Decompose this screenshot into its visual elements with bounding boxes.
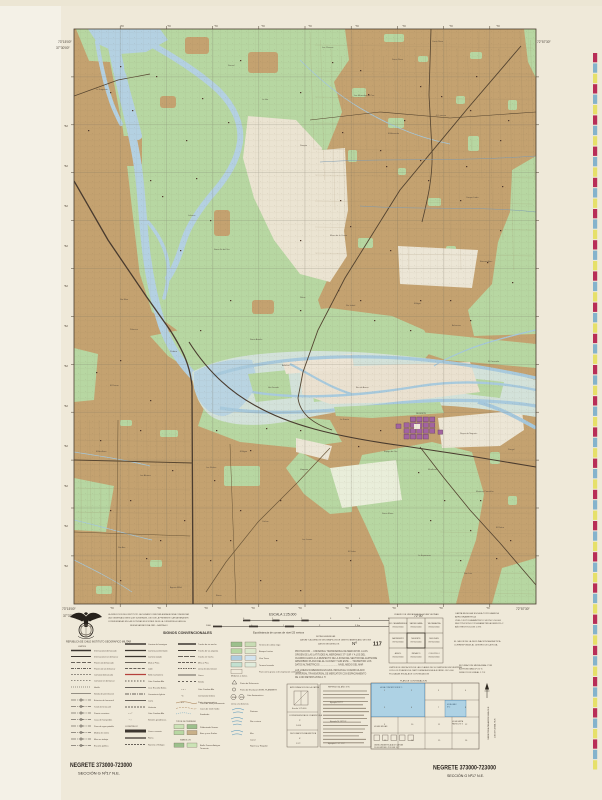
svg-text:Molino de viento: Molino de viento xyxy=(94,732,110,735)
svg-text:′70: ′70 xyxy=(392,606,396,610)
svg-text:′70: ′70 xyxy=(204,606,208,610)
svg-text:′52: ′52 xyxy=(64,444,68,448)
svg-text:Tunel de ferrocarril: Tunel de ferrocarril xyxy=(94,706,112,709)
svg-text:LIMITES DE UBICACION DE LAS CL: LIMITES DE UBICACION DE LAS CLASES DE SU… xyxy=(389,666,463,669)
svg-text:′70: ′70 xyxy=(496,24,500,28)
svg-text:Curva de nivel permanente: Curva de nivel permanente xyxy=(200,702,225,705)
svg-text:73°15′00″: 73°15′00″ xyxy=(58,40,73,44)
svg-text:PROYECCION ... UNIVERSAL TRANS: PROYECCION ... UNIVERSAL TRANSVERSAL DE … xyxy=(295,650,368,653)
svg-text:Senales geodesicas: Senales geodesicas xyxy=(148,720,166,722)
svg-text:RIO CARAMPANGUE: RIO CARAMPANGUE xyxy=(389,622,408,625)
svg-text:′70: ′70 xyxy=(298,606,302,610)
svg-text:′70: ′70 xyxy=(261,24,265,28)
svg-text:AEROGRAMETRICA: AEROGRAMETRICA xyxy=(455,615,476,618)
svg-text:374500-730000: 374500-730000 xyxy=(392,657,403,659)
svg-text:Escuela publica: Escuela publica xyxy=(94,746,109,748)
svg-text:MULCHEN: MULCHEN xyxy=(429,638,439,640)
svg-text:2°: 2° xyxy=(299,720,301,722)
svg-text:APROXIMACION DE LA CARTA: APROXIMACION DE LA CARTA xyxy=(290,686,320,689)
svg-text:INCLINACION MEDIA REAL POR: INCLINACION MEDIA REAL POR xyxy=(459,664,493,667)
svg-text:SIMBOLOS: SIMBOLOS xyxy=(180,740,191,742)
svg-text:SNA: SNA xyxy=(232,696,237,699)
svg-text:CARTA REGULAR ESCALA TOPOGRAFI: CARTA REGULAR ESCALA TOPOGRAFICA xyxy=(455,612,499,615)
svg-text:Cementerio Iglesia: Cementerio Iglesia xyxy=(148,693,166,696)
svg-text:Equidistancia de curvas de niv: Equidistancia de curvas de nivel 25 metr… xyxy=(253,631,305,635)
svg-text:Ejemplo Nº 1977.8°: Ejemplo Nº 1977.8° xyxy=(330,720,347,723)
svg-text:Punto de Nivelacion NIVEL PLAN: Punto de Nivelacion NIVEL PLANIMETR xyxy=(240,689,277,692)
svg-text:72°57′30″: 72°57′30″ xyxy=(537,40,552,44)
svg-text:Camino pavimentado: Camino pavimentado xyxy=(148,650,168,653)
svg-text:SNS: SNS xyxy=(240,697,245,699)
svg-text:Provincial sin demarcar: Provincial sin demarcar xyxy=(94,668,116,671)
svg-text:Cota Cumbre Alta: Cota Cumbre Alta xyxy=(148,712,165,715)
svg-text:CONVERGENCIA DE CUADRICULA: CONVERGENCIA DE CUADRICULA xyxy=(289,714,323,717)
svg-text:CUADRICULADO A LA RESPECTO DE: CUADRICULADO A LA RESPECTO DE LA ZONA DE… xyxy=(295,657,378,660)
svg-text:25.000 IMPRESO POR IGM 1977: 25.000 IMPRESO POR IGM 1977 xyxy=(374,747,399,749)
svg-text:ESCALA 1:25.000: ESCALA 1:25.000 xyxy=(269,613,296,617)
svg-text:SANTA JUANA: SANTA JUANA xyxy=(410,622,424,625)
svg-text:VUELO FOTOGRAMETRICO SR 250 1: VUELO FOTOGRAMETRICO SR 250 1:50.000 xyxy=(455,619,502,622)
svg-text:Nº: Nº xyxy=(352,641,357,646)
svg-text:373000-724500: 373000-724500 xyxy=(410,627,421,629)
svg-text:′70: ′70 xyxy=(486,606,490,610)
svg-text:4°: 4° xyxy=(299,738,301,740)
svg-text:Provincial demarcado: Provincial demarcado xyxy=(94,662,115,665)
svg-text:+ c †: + c † xyxy=(128,713,133,715)
svg-text:Polderizado Suaves: Polderizado Suaves xyxy=(200,726,218,729)
svg-text:Rancho o Refugio: Rancho o Refugio xyxy=(148,745,165,747)
svg-text:73°15′00″: 73°15′00″ xyxy=(62,607,77,611)
svg-text:Bralla Terreno Antiguo: Bralla Terreno Antiguo xyxy=(200,744,221,747)
svg-text:′70: ′70 xyxy=(110,606,114,610)
svg-text:Punto de Referencia: Punto de Referencia xyxy=(240,682,260,685)
svg-text:Puente carretero: Puente carretero xyxy=(94,712,110,715)
svg-text:Terracota: Terracota xyxy=(200,747,209,750)
svg-text:1.004: 1.004 xyxy=(296,725,302,727)
svg-text:Cerca: Cerca xyxy=(198,674,204,677)
svg-text:Estacion de ferrocarril: Estacion de ferrocarril xyxy=(94,699,114,702)
svg-text:′70: ′70 xyxy=(345,606,349,610)
svg-text:DE 1.000 METROS ZONA 1 H: DE 1.000 METROS ZONA 1 H xyxy=(295,676,326,679)
svg-text:ASTRONOMIA 37°22′ S: ASTRONOMIA 37°22′ S xyxy=(459,667,483,670)
svg-text:′52: ′52 xyxy=(64,284,68,288)
svg-text:Ruina: Ruina xyxy=(148,738,154,740)
svg-text:UNIVERSAL TRANSVERSAL DE MERCA: UNIVERSAL TRANSVERSAL DE MERCATOR CON ES… xyxy=(295,672,367,675)
svg-text:TIPOS DE TERRENO: TIPOS DE TERRENO xyxy=(176,721,197,723)
svg-text:1000: 1000 xyxy=(206,625,212,627)
svg-text:PLAN DE CONTINUACION: PLAN DE CONTINUACION xyxy=(400,680,427,683)
svg-text:′70: ′70 xyxy=(355,24,359,28)
svg-text:Camino de hormigon: Camino de hormigon xyxy=(148,643,167,646)
svg-text:REPUBLICA DE CHILE INSTITUTO: REPUBLICA DE CHILE INSTITUTO GEOGRAFICO … xyxy=(66,641,131,644)
svg-text:Mar: Mar xyxy=(250,732,254,735)
svg-text:Carta: Carta xyxy=(148,700,154,703)
svg-text:DATUM Y ACUERDOS GEOGRAFICOS D: DATUM Y ACUERDOS GEOGRAFICOS DE CENTRO A… xyxy=(300,639,372,642)
svg-text:′52: ′52 xyxy=(64,364,68,368)
svg-text:Terreno humedo: Terreno humedo xyxy=(259,664,275,667)
svg-text:LAS OBSERVACIONES QUE SUGIERA: LAS OBSERVACIONES QUE SUGIERA EL USO DE … xyxy=(108,617,189,620)
svg-text:DECLINACION MAGNETICA: DECLINACION MAGNETICA xyxy=(290,732,317,735)
svg-text:RESTITUCION FOTOGRAMETRICA KE: RESTITUCION FOTOGRAMETRICA KERN PG-2 xyxy=(455,622,504,625)
svg-text:′70: ′70 xyxy=(402,24,406,28)
svg-text:LAS LINEAS NUMERADAS EN AZUL I: LAS LINEAS NUMERADAS EN AZUL INDICAN EL … xyxy=(295,669,365,672)
svg-text:NOTAS HIGIENICAS: NOTAS HIGIENICAS xyxy=(316,635,336,638)
svg-text:Trocha de via angosta: Trocha de via angosta xyxy=(198,650,219,653)
svg-text:374500-723000: 374500-723000 xyxy=(428,657,439,659)
svg-text:Mina o Pica: Mina o Pica xyxy=(198,663,210,665)
svg-text:Senda: Senda xyxy=(198,682,205,684)
svg-text:ABSORBIDO PLANO DEL EL CLOVE: ABSORBIDO PLANO DEL EL CLOVER Y SUR ESTE… xyxy=(295,660,372,663)
svg-text:Casa de huespedes: Casa de huespedes xyxy=(94,720,112,722)
svg-text:′52: ′52 xyxy=(64,404,68,408)
svg-text:Comunal demarcado: Comunal demarcado xyxy=(94,674,114,677)
svg-text:Cota fluviometrica: Cota fluviometrica xyxy=(247,694,264,697)
svg-text:Senda de penetracion: Senda de penetracion xyxy=(94,693,114,696)
svg-text:Δ c: Δ c xyxy=(181,701,184,704)
svg-text:NACIMIENTO: NACIMIENTO xyxy=(392,637,404,640)
svg-text:′70: ′70 xyxy=(214,24,218,28)
svg-text:Medanos o dunas: Medanos o dunas xyxy=(231,676,247,678)
svg-text:SECCIÓN G Nº17 N.E.: SECCIÓN G Nº17 N.E. xyxy=(447,773,484,778)
svg-text:DATOS GEODESICOS: DATOS GEODESICOS xyxy=(318,643,340,646)
svg-text:374500-724500: 374500-724500 xyxy=(410,657,421,659)
svg-text:Brea y mas Suelos: Brea y mas Suelos xyxy=(200,732,217,735)
svg-text:′70: ′70 xyxy=(120,24,124,28)
svg-text:HOJA CONCEPCION Nº 1: HOJA CONCEPCION Nº 1 xyxy=(380,686,402,689)
svg-text:373730-723000: 373730-723000 xyxy=(428,642,439,644)
svg-text:373000-723000: 373000-723000 xyxy=(428,627,439,629)
svg-text:NEGRETE 373000-723000: NEGRETE 373000-723000 xyxy=(70,762,132,769)
svg-text:REFERIDO AL AÑO 1975: REFERIDO AL AÑO 1975 xyxy=(328,686,350,689)
svg-text:Bosque Limites: Bosque Limites xyxy=(259,650,273,653)
svg-text:Camino ripiado: Camino ripiado xyxy=(148,656,163,659)
svg-text:Ejemplo 1977.7: Ejemplo 1977.7 xyxy=(330,702,343,704)
svg-text:72°57′30″: 72°57′30″ xyxy=(516,607,531,611)
svg-text:+ a +: + a + xyxy=(181,689,186,691)
svg-text:Cruz Escuela Baliza: Cruz Escuela Baliza xyxy=(148,687,167,690)
svg-text:Nº 2: Nº 2 xyxy=(447,706,450,709)
svg-text:Trocha de via ancha: Trocha de via ancha xyxy=(198,643,217,646)
svg-text:Pantano: Pantano xyxy=(250,710,258,713)
svg-text:CUADRO DE UBICACION DE HOJAS V: CUADRO DE UBICACION DE HOJAS VECINAS xyxy=(394,613,439,616)
svg-text:LIMITES: LIMITES xyxy=(78,646,87,648)
svg-text:′52: ′52 xyxy=(64,484,68,488)
svg-text:373730-724500: 373730-724500 xyxy=(410,642,421,644)
svg-text:117: 117 xyxy=(373,642,382,648)
svg-text:373000-730000: 373000-730000 xyxy=(392,627,403,629)
svg-text:373730-730000: 373730-730000 xyxy=(392,642,403,644)
svg-text:ORIGEN DE LAS LATITUDES AL MER: ORIGEN DE LAS LATITUDES AL MERIDIANO 37°… xyxy=(295,653,366,656)
svg-text:Huella: Huella xyxy=(94,687,101,689)
svg-text:Linea de alta tension: Linea de alta tension xyxy=(198,668,217,671)
svg-text:Escala 1:25.000: Escala 1:25.000 xyxy=(292,708,307,710)
svg-text:CONSIDERADAS EN LAS FUTURAS ED: CONSIDERADAS EN LAS FUTURAS EDICIONES DE… xyxy=(108,620,186,623)
svg-text:′70: ′70 xyxy=(157,606,161,610)
svg-text:′70: ′70 xyxy=(251,606,255,610)
svg-text:′52: ′52 xyxy=(64,244,68,248)
svg-text:Internacional demarcado: Internacional demarcado xyxy=(94,650,117,653)
svg-text:′70: ′70 xyxy=(439,606,443,610)
svg-text:Pozo de agua potable: Pozo de agua potable xyxy=(94,725,115,728)
svg-text:Cota Cumbre Alta: Cota Cumbre Alta xyxy=(148,680,165,683)
svg-text:CORRESPONDE AL CENTRO DE LA HO: CORRESPONDE AL CENTRO DE LA HOJA xyxy=(454,643,498,646)
svg-text:Linea a la distancia: Linea a la distancia xyxy=(231,703,249,706)
svg-text:3 Km: 3 Km xyxy=(355,625,360,627)
svg-text:COLLIPULLI: COLLIPULLI xyxy=(429,653,440,655)
svg-text:Casa o caserio: Casa o caserio xyxy=(148,730,163,733)
svg-text:LA DIRECCION DEL INSTITUTO GEO: LA DIRECCION DEL INSTITUTO GEOGRAFICO MI… xyxy=(108,613,190,616)
svg-text:Ejemplo 1° 57′ 17.5″: Ejemplo 1° 57′ 17.5″ xyxy=(328,743,345,745)
svg-text:′70: ′70 xyxy=(167,24,171,28)
svg-text:Mala o Pista: Mala o Pista xyxy=(148,662,160,665)
svg-text:′52: ′52 xyxy=(64,164,68,168)
svg-text:′52: ′52 xyxy=(64,124,68,128)
svg-text:AÑO RESTITUCION 1.975: AÑO RESTITUCION 1.975 xyxy=(455,626,482,629)
svg-text:′52: ′52 xyxy=(64,324,68,328)
svg-text:PULGADAS ESCALA DE CONTINUACI: PULGADAS ESCALA DE CONTINUACION xyxy=(389,672,430,675)
svg-text:NEGRETE 373000-723000: NEGRETE 373000-723000 xyxy=(433,765,496,772)
svg-text:Trocha en trocha: Trocha en trocha xyxy=(198,656,214,659)
svg-text:EL VALOR DE LA DECLINACION MAG: EL VALOR DE LA DECLINACION MAGNETICA xyxy=(454,640,501,643)
svg-text:Canal: Canal xyxy=(250,740,256,742)
svg-text:NUEVA SANTA ROSA 2885 - SANTIA: NUEVA SANTA ROSA 2885 - SANTIAGO xyxy=(130,624,168,627)
svg-text:SECCIÓN G Nº17 N.E.: SECCIÓN G Nº17 N.E. xyxy=(78,771,120,776)
svg-text:TALCAMAVIDA: TALCAMAVIDA xyxy=(427,622,441,625)
svg-text:NEGRETE: NEGRETE xyxy=(411,638,421,640)
svg-text:Fondeada: Fondeada xyxy=(200,714,210,716)
svg-text:DATOS ALTIMETRICOS ...........: DATOS ALTIMETRICOS .....................… xyxy=(295,664,364,667)
svg-text:37°30′00″: 37°30′00″ xyxy=(56,46,71,50)
svg-text:CONSTRUCC: CONSTRUCC xyxy=(125,726,139,728)
svg-text:LONGITUDINAL SUR: LONGITUDINAL SUR xyxy=(494,718,497,738)
svg-text:Crematorio lindero: Crematorio lindero xyxy=(198,695,216,698)
svg-text:CARRETERA PANAMERICANA SUR: CARRETERA PANAMERICANA SUR xyxy=(487,706,490,740)
svg-text:Vina Tierra: Vina Tierra xyxy=(259,657,270,660)
svg-text:1.97°: 1.97° xyxy=(296,743,301,745)
svg-text:DIRECCION LINEAL 1.7 N: DIRECCION LINEAL 1.7 N xyxy=(459,671,486,674)
svg-text:Comunal sin demarcar: Comunal sin demarcar xyxy=(94,680,115,683)
svg-text:Mina en trabajo: Mina en trabajo xyxy=(94,738,109,741)
svg-text:Represa y Regador: Represa y Regador xyxy=(250,745,268,748)
svg-text:′70: ′70 xyxy=(449,24,453,28)
svg-text:RENAICO: RENAICO xyxy=(412,652,421,655)
svg-text:HOJA E MILLAS: HOJA E MILLAS xyxy=(374,725,388,728)
svg-text:CON LOS PILARES DE CARTOGRAFIA: CON LOS PILARES DE CARTOGRAFIA ESCALA SO… xyxy=(389,669,454,672)
svg-text:Cota Cumbre Alta: Cota Cumbre Alta xyxy=(198,688,215,691)
svg-text:Internacional sin demarcar: Internacional sin demarcar xyxy=(94,656,118,659)
svg-text:′52: ′52 xyxy=(64,204,68,208)
svg-text:Vertiente: Vertiente xyxy=(148,706,157,709)
svg-text:Curva de nivel medio: Curva de nivel medio xyxy=(200,708,220,711)
svg-text:ANGOL: ANGOL xyxy=(395,652,402,655)
svg-text:PATROL Nº 3: PATROL Nº 3 xyxy=(452,723,463,726)
svg-text:SIGNOS CONVENCIONALES: SIGNOS CONVENCIONALES xyxy=(163,631,213,635)
svg-text:′52: ′52 xyxy=(64,524,68,528)
svg-text:′52: ′52 xyxy=(64,564,68,568)
svg-text:′70: ′70 xyxy=(308,24,312,28)
svg-text:Rio o estero: Rio o estero xyxy=(250,720,262,723)
svg-text:Terreno de cultivo riego: Terreno de cultivo riego xyxy=(259,643,281,646)
svg-text:Sello Camionero: Sello Camionero xyxy=(148,674,164,677)
